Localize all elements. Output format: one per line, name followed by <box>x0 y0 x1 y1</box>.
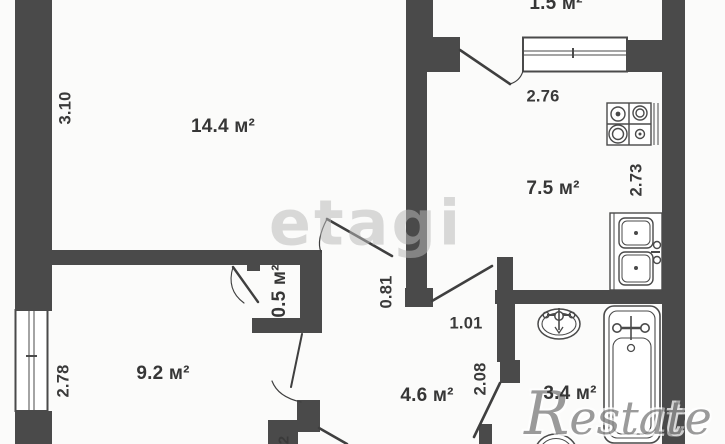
dimension-label-2-76: 2.76 <box>527 88 560 107</box>
watermark-etagi: etagi <box>269 187 463 260</box>
floorplan-canvas: etagi Restate 14.4 м² 1.5 м² 7.5 м² 0.5 … <box>0 0 725 444</box>
door-icon-balcony <box>460 50 523 84</box>
wall <box>500 360 520 383</box>
room-label-bathroom: 3.4 м² <box>543 383 596 405</box>
door-icon-closet <box>231 267 258 303</box>
wall <box>247 262 260 271</box>
kitchen-sink-icon <box>610 213 662 290</box>
dimension-label-0-81: 0.81 <box>378 276 397 309</box>
dimension-label-2-78: 2.78 <box>55 365 74 398</box>
wall <box>406 0 433 40</box>
dimension-label-3-10: 3.10 <box>57 92 76 125</box>
wall <box>406 37 460 72</box>
room-label-living-room: 14.4 м² <box>191 116 255 138</box>
room-label-balcony: 1.5 м² <box>529 0 582 15</box>
wall <box>497 257 513 292</box>
room-label-closet: 0.5 м² <box>269 264 291 317</box>
wall <box>252 318 322 333</box>
wall <box>15 0 52 265</box>
wall <box>627 40 667 72</box>
wall <box>15 411 52 444</box>
room-label-bedroom: 9.2 м² <box>136 363 189 385</box>
door-icon-kitchen <box>432 266 492 301</box>
window-icon-left <box>16 310 48 411</box>
dimension-label-1-01: 1.01 <box>450 315 483 334</box>
wall <box>479 424 492 444</box>
wall <box>495 290 684 304</box>
partial-room-label: 2 <box>276 436 293 444</box>
room-label-kitchen: 7.5 м² <box>526 178 579 200</box>
door-icon-bedroom <box>272 334 302 402</box>
wall <box>297 400 320 432</box>
wall <box>497 302 515 362</box>
washbasin-icon <box>538 308 580 339</box>
dimension-label-2-08: 2.08 <box>472 363 491 396</box>
door-icon-entrance <box>319 428 347 444</box>
stove-icon <box>607 103 658 145</box>
room-label-hallway: 4.6 м² <box>400 385 453 407</box>
dimension-label-2-73: 2.73 <box>628 164 647 197</box>
wall <box>15 265 52 311</box>
wall <box>405 288 433 307</box>
window-icon-balcony <box>523 38 627 72</box>
